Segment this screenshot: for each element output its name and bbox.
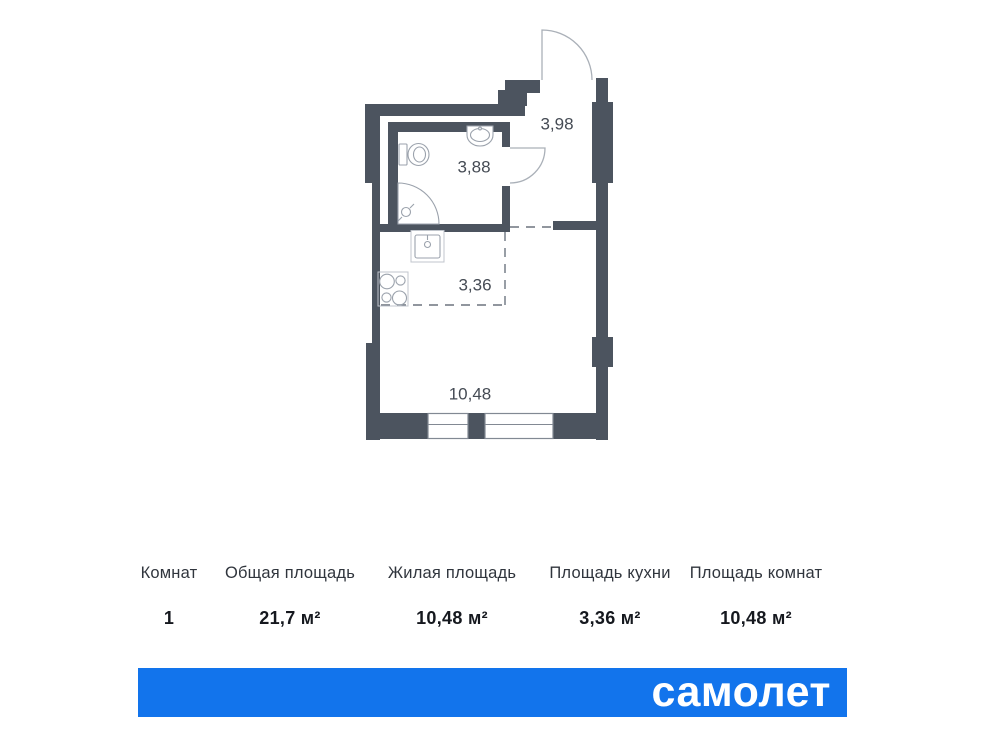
kitchen-area-label: 3,36 — [458, 276, 491, 295]
living-room-area-label: 10,48 — [449, 385, 492, 404]
stove-icon — [378, 272, 408, 306]
floor-plan: 3,98 3,88 3,36 10,48 — [0, 0, 985, 750]
washbasin-icon — [467, 126, 493, 146]
brand-banner[interactable]: самолет — [138, 668, 847, 717]
summary-col-living-area: Жилая площадь 10,48 м² — [364, 564, 540, 629]
bathroom-area-label: 3,88 — [457, 158, 490, 177]
column-value: 21,7 м² — [202, 608, 378, 629]
shower-icon — [398, 183, 439, 224]
kitchen-sink-icon — [411, 231, 444, 263]
column-value: 10,48 м² — [364, 608, 540, 629]
column-header: Жилая площадь — [364, 564, 540, 583]
column-header: Общая площадь — [202, 564, 378, 583]
brand-logo: самолет — [652, 671, 831, 714]
hallway-area-label: 3,98 — [540, 115, 573, 134]
window-symbol — [428, 414, 553, 439]
entry-door-arc — [542, 30, 592, 80]
column-value: 10,48 м² — [668, 608, 844, 629]
bathroom-door-arc — [510, 148, 545, 183]
toilet-icon — [399, 144, 429, 166]
summary-col-rooms-area: Площадь комнат 10,48 м² — [668, 564, 844, 629]
column-header: Площадь комнат — [668, 564, 844, 583]
summary-col-total-area: Общая площадь 21,7 м² — [202, 564, 378, 629]
listing-card: 3,98 3,88 3,36 10,48 Комнат 1 Общая площ… — [0, 0, 985, 750]
